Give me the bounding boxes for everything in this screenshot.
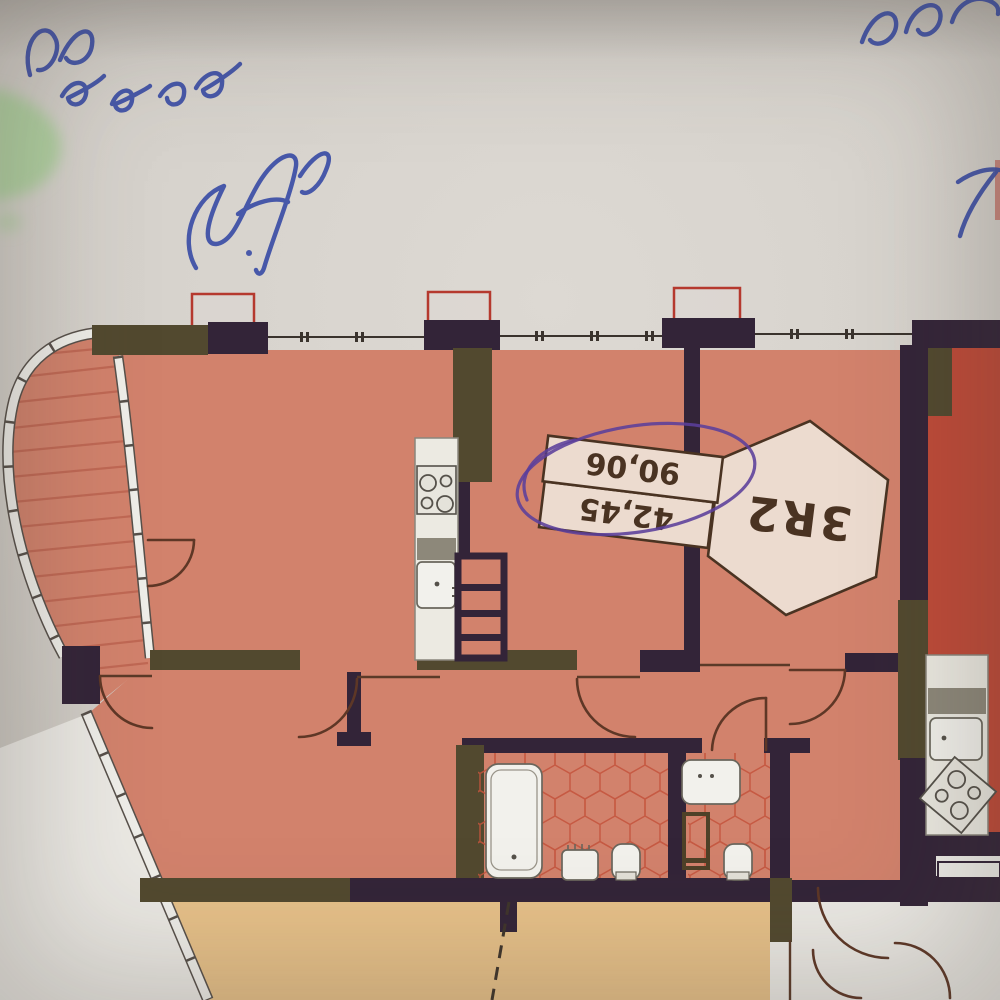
balcony-railing-outline bbox=[674, 288, 740, 322]
counter-appliance bbox=[417, 538, 456, 560]
lower-unit-floor bbox=[118, 902, 770, 1000]
floor-plan-photo-canvas: 42,45 90,06 3R2 bbox=[0, 0, 1000, 1000]
corridor-wall-stub bbox=[770, 878, 792, 942]
wc-wall bbox=[770, 748, 790, 878]
balcony-slot bbox=[938, 862, 1000, 878]
toilet-icon bbox=[612, 844, 640, 880]
right-counter-appliance bbox=[928, 688, 986, 714]
bottom-wall bbox=[140, 878, 350, 902]
unit-separation-wall bbox=[900, 345, 928, 600]
wall-pier bbox=[208, 322, 268, 354]
middle-wall-pier bbox=[62, 646, 100, 704]
sink-icon bbox=[417, 562, 457, 608]
middle-wall bbox=[640, 650, 700, 672]
stairwell-corridor-floor bbox=[770, 902, 1000, 1000]
wall-pier bbox=[424, 320, 500, 350]
wall-pier bbox=[92, 325, 208, 355]
adjacent-unit-kitchen bbox=[920, 655, 996, 835]
wc-toilet-icon bbox=[724, 844, 752, 880]
wc-washbasin-icon bbox=[682, 760, 740, 804]
right-sink-icon bbox=[930, 718, 982, 760]
unit-separation-wall bbox=[898, 600, 928, 760]
middle-wall bbox=[150, 650, 300, 670]
bathroom-wall bbox=[462, 738, 702, 753]
top-shadow bbox=[0, 0, 1000, 60]
stove-icon bbox=[417, 466, 456, 514]
photographed-floor-plan: 42,45 90,06 3R2 bbox=[0, 0, 1000, 1000]
service-ladder bbox=[458, 556, 504, 658]
hallway-wall-foot bbox=[337, 732, 371, 746]
handwriting-stroke bbox=[246, 250, 252, 256]
bottom-wall bbox=[350, 878, 770, 902]
wall-pier bbox=[912, 320, 1000, 348]
bathtub-icon bbox=[486, 764, 542, 878]
wall-column bbox=[928, 348, 952, 416]
wall-pier bbox=[662, 318, 755, 348]
washbasin-icon bbox=[562, 844, 598, 880]
vent-shaft bbox=[453, 348, 492, 482]
bathroom bbox=[478, 753, 770, 880]
